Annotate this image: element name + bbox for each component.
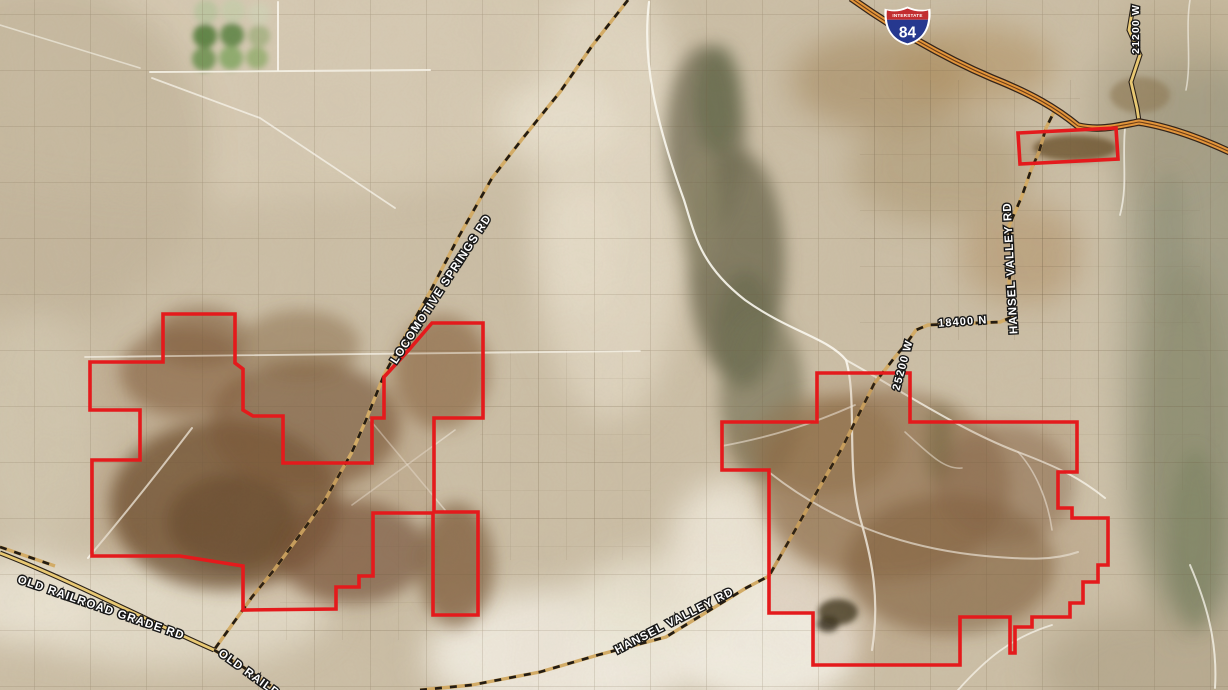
north-fire-perimeter xyxy=(1018,128,1118,164)
interstate-shield-band-text: INTERSTATE xyxy=(892,13,922,18)
map-canvas[interactable]: LOCOMOTIVE SPRINGS RD HANSEL VALLEY RD H… xyxy=(0,0,1228,690)
satellite-map: LOCOMOTIVE SPRINGS RD HANSEL VALLEY RD H… xyxy=(0,0,1228,690)
label-21200-w: 21200 W xyxy=(1130,4,1142,54)
interstate-shield-number: 84 xyxy=(899,25,917,42)
